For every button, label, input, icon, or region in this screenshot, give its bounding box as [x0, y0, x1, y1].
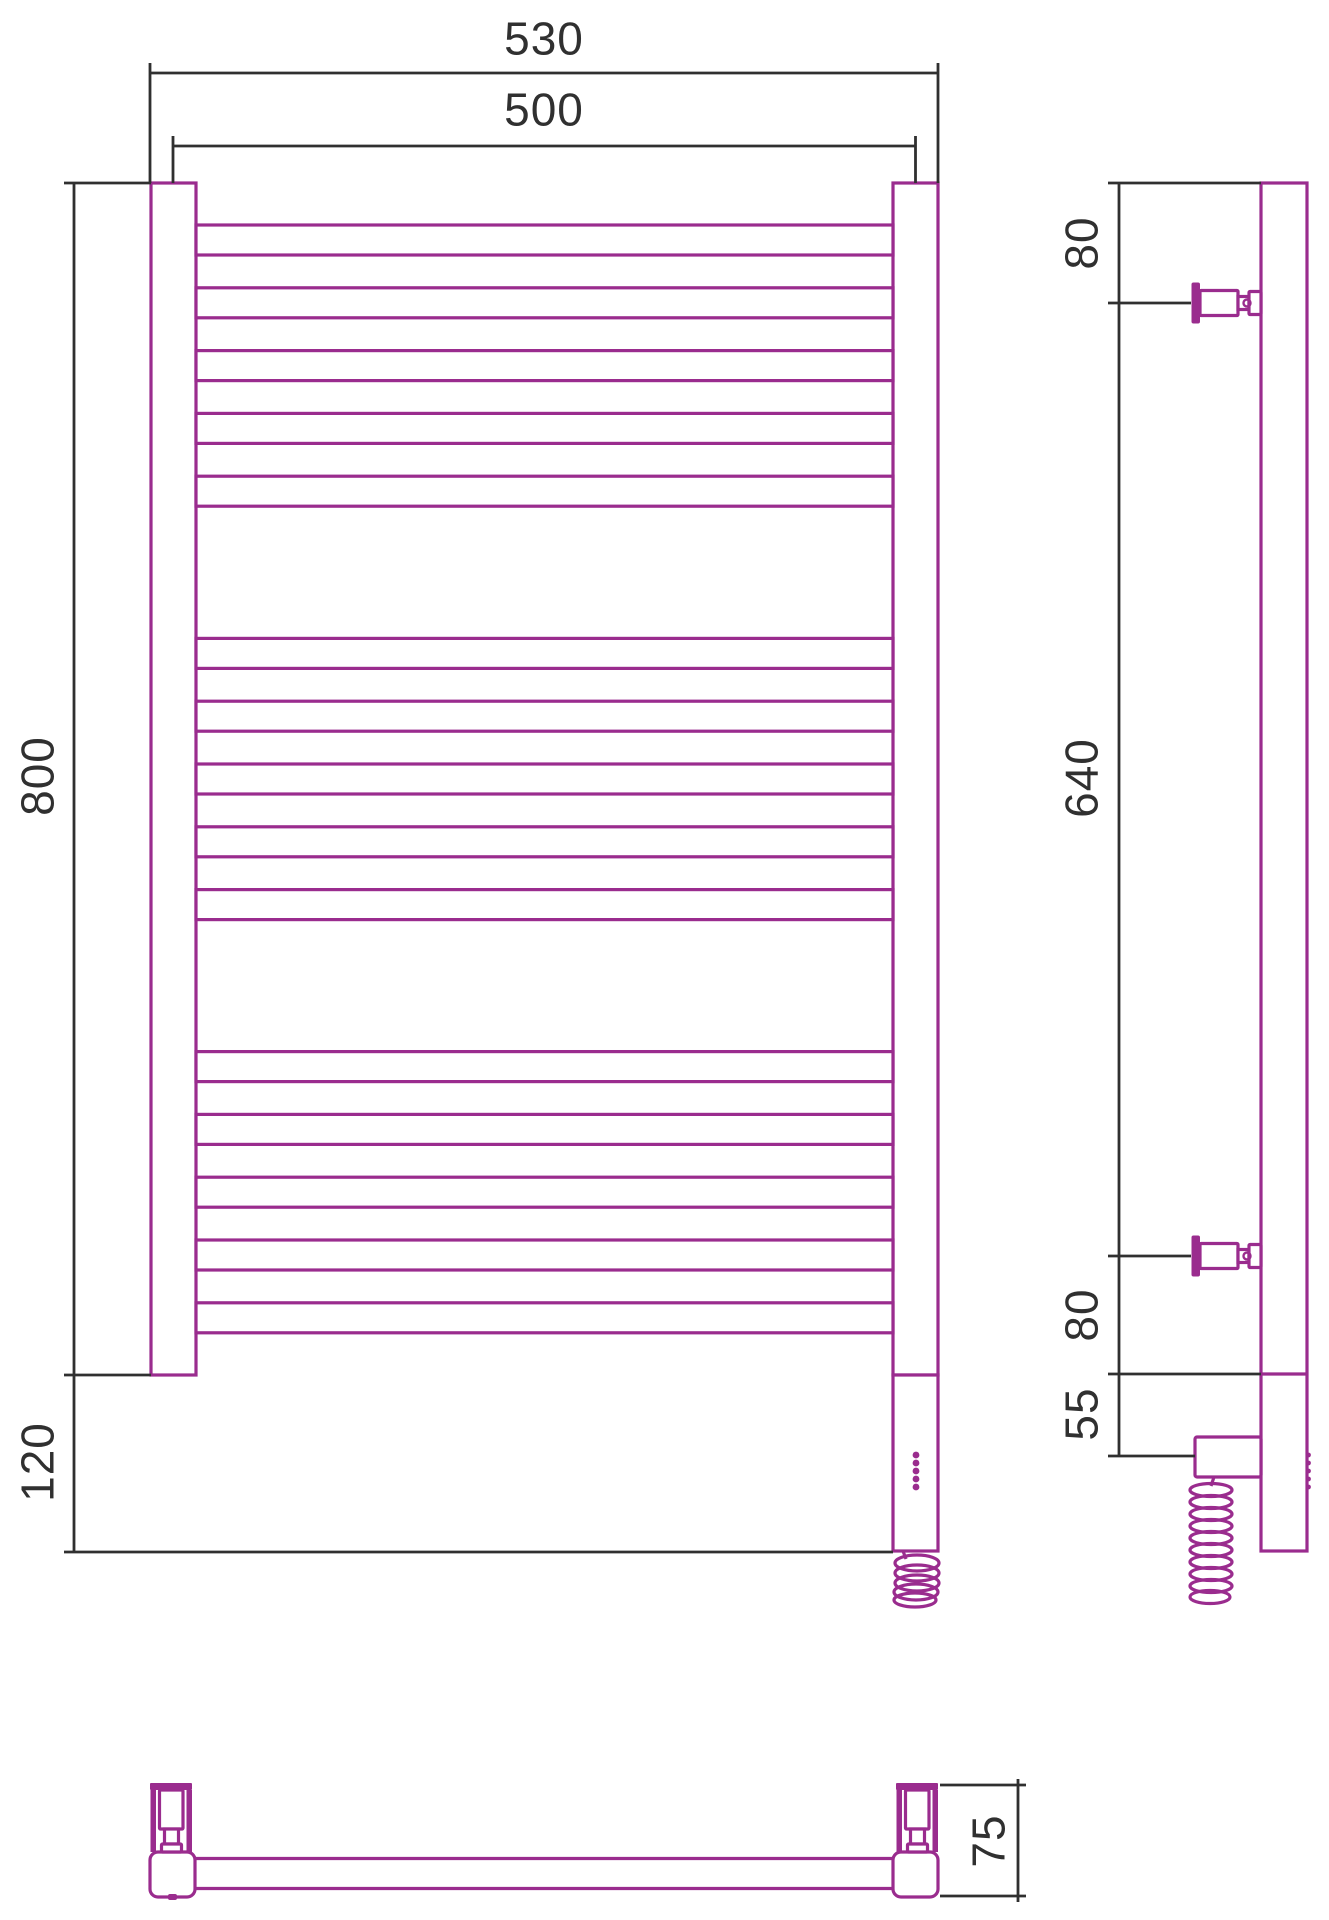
- bottom-left-bracket-cylinder: [160, 1790, 184, 1829]
- bottom-left-corner-block: [150, 1852, 195, 1897]
- crossbar: [196, 1052, 893, 1082]
- crossbar: [196, 701, 893, 731]
- bottom-right-bracket-flange: [908, 1844, 928, 1852]
- dim-label-75: 75: [963, 1814, 1015, 1867]
- side-indicator-bump: [1306, 1485, 1311, 1490]
- drawing-page: 53050080012080640805575: [0, 0, 1329, 1920]
- crossbar: [196, 1303, 893, 1333]
- dim-label-530: 530: [504, 13, 584, 65]
- crossbar: [196, 638, 893, 668]
- bottom-right-bracket-wall-a: [897, 1790, 903, 1852]
- front-right-rail: [893, 183, 938, 1375]
- side-indicator-bump: [1306, 1469, 1311, 1474]
- crossbar: [196, 225, 893, 255]
- bottom-right-bracket-wall-b: [933, 1790, 939, 1852]
- front-indicator-dot: [913, 1484, 920, 1491]
- side-tube: [1261, 183, 1307, 1551]
- bottom-left-bracket-stem: [165, 1829, 179, 1844]
- side-bracket-top-housing: [1200, 291, 1238, 316]
- technical-drawing-towel-rail: 53050080012080640805575: [0, 0, 1329, 1920]
- dim-label-120: 120: [12, 1422, 64, 1502]
- bottom-left-bracket-wall-a: [151, 1790, 157, 1852]
- dim-label-80-top: 80: [1056, 216, 1108, 269]
- bottom-left-wall-plate: [150, 1783, 192, 1790]
- side-electric-box: [1195, 1437, 1261, 1477]
- front-indicator-dot: [913, 1468, 920, 1475]
- dim-label-800: 800: [12, 736, 64, 816]
- bottom-right-bracket-stem: [911, 1829, 925, 1844]
- crossbar: [196, 827, 893, 857]
- bottom-left-block-notch: [168, 1894, 177, 1900]
- dim-label-55: 55: [1056, 1387, 1108, 1440]
- crossbar: [196, 764, 893, 794]
- side-indicator-bump: [1306, 1453, 1311, 1458]
- side-indicator-bump: [1306, 1477, 1311, 1482]
- bottom-right-bracket-cylinder: [906, 1790, 930, 1829]
- front-indicator-dot: [913, 1476, 920, 1483]
- bottom-left-bracket-wall-b: [187, 1790, 193, 1852]
- front-indicator-dot: [913, 1460, 920, 1467]
- dim-label-80-bottom: 80: [1056, 1288, 1108, 1341]
- crossbar: [196, 1240, 893, 1270]
- side-bracket-bottom-housing: [1200, 1244, 1238, 1269]
- side-indicator-bump: [1306, 1461, 1311, 1466]
- crossbar: [196, 1114, 893, 1144]
- side-bracket-top-wall-flange: [1192, 283, 1201, 324]
- crossbar: [196, 351, 893, 381]
- dim-label-500: 500: [504, 84, 584, 136]
- dim-label-640: 640: [1056, 738, 1108, 818]
- bottom-right-wall-plate: [896, 1783, 938, 1790]
- bottom-right-corner-block: [893, 1852, 938, 1897]
- crossbar: [196, 288, 893, 318]
- crossbar: [196, 890, 893, 920]
- crossbar: [196, 413, 893, 443]
- bottom-left-bracket-flange: [162, 1844, 182, 1852]
- front-indicator-dot: [913, 1452, 920, 1459]
- side-bracket-bottom-wall-flange: [1192, 1236, 1201, 1277]
- crossbar: [196, 476, 893, 506]
- front-left-rail: [151, 183, 196, 1375]
- crossbar: [196, 1177, 893, 1207]
